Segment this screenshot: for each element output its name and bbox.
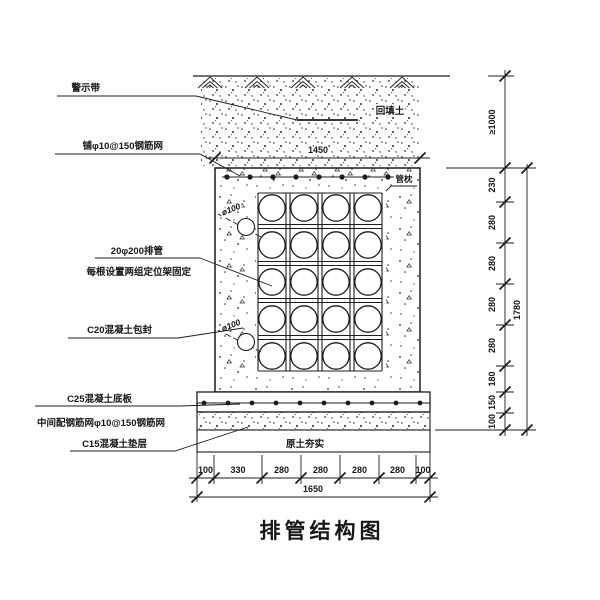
pipe-circle [355, 306, 381, 332]
rebar-dot [270, 174, 275, 179]
base-structure: 原土夯实 [197, 392, 430, 452]
pipe-duct-section-drawing: 回填土 警示带 铺φ10@150钢筋网 1450 管枕 ø100 [0, 0, 600, 600]
dim-right-seg-7: 100 [487, 414, 497, 429]
rebar-dot [298, 401, 303, 406]
base-slab-mesh-label: 中间配钢筋网φ10@150钢筋网 [37, 417, 165, 429]
pipe-circle [323, 306, 349, 332]
warning-tape-label: 警示带 [71, 82, 100, 94]
drawing-sheet: 回填土 警示带 铺φ10@150钢筋网 1450 管枕 ø100 [0, 0, 600, 600]
rebar-dot [293, 174, 298, 179]
pipe-pillow-label: 管枕 [395, 174, 413, 184]
dim-right: ≥1000 230 280 280 280 280 180 150 100 17… [435, 70, 536, 436]
pipe-circle [291, 306, 317, 332]
pipe-circle [355, 232, 381, 258]
drain-lower-circle [238, 334, 255, 351]
base-slab-label: C25混凝土底板 [67, 393, 132, 405]
pipe-circle [259, 232, 285, 258]
cushion-layer [197, 412, 430, 430]
rebar-dot [362, 174, 367, 179]
rebar-dot [274, 401, 279, 406]
pipe-circle [323, 269, 349, 295]
dim-bottom: 100 330 280 280 280 280 100 1650 [189, 452, 438, 503]
rebar-dot [385, 174, 390, 179]
dim-right-seg-6: 150 [487, 395, 497, 410]
duct-structure: 管枕 ø100 ø100 [215, 168, 420, 392]
dim-bottom-seg-0: 100 [198, 465, 213, 475]
dim-right-seg-2: 280 [487, 256, 497, 271]
dim-bottom-seg-5: 280 [390, 465, 405, 475]
top-mesh-label: 铺φ10@150钢筋网 [83, 140, 163, 152]
pipe-circle [355, 343, 381, 369]
pipe-circle [259, 306, 285, 332]
dim-bottom-seg-4: 280 [352, 465, 367, 475]
rebar-dot [316, 174, 321, 179]
rebar-dot [346, 401, 351, 406]
pipe-circle [259, 195, 285, 221]
dim-bottom-extensions [197, 452, 430, 502]
dim-right-extensions [435, 76, 536, 430]
pipe-circle [323, 232, 349, 258]
dim-bottom-seg-6: 100 [415, 465, 430, 475]
pipe-circle [291, 343, 317, 369]
dim-right-total-value: 1780 [512, 300, 522, 320]
rammed-soil-label: 原土夯实 [286, 438, 325, 450]
dim-right-seg-0: 230 [487, 177, 497, 192]
pipe-circle [291, 232, 317, 258]
dim-bottom-total-value: 1650 [303, 484, 323, 494]
pipe-circle [291, 195, 317, 221]
backfill-label: 回填土 [376, 105, 405, 117]
rebar-dot [202, 401, 207, 406]
drawing-title: 排管结构图 [260, 519, 385, 543]
cushion-label: C15混凝土垫层 [82, 438, 147, 450]
dim-bottom-seg-2: 280 [274, 465, 289, 475]
rebar-dot [394, 401, 399, 406]
pipe-circle [355, 269, 381, 295]
dim-right-seg-3: 280 [487, 297, 497, 312]
rebar-dot [418, 401, 423, 406]
rebar-dot [247, 174, 252, 179]
rebar-dot [250, 401, 255, 406]
dim-right-seg-1: 280 [487, 215, 497, 230]
rebar-dot [339, 174, 344, 179]
pipe-circle [259, 343, 285, 369]
dim-right-seg-4: 280 [487, 338, 497, 353]
pipes-label: 20φ200排管 [111, 245, 164, 257]
pipe-circle [355, 195, 381, 221]
pipe-circle [291, 269, 317, 295]
rebar-dot [370, 401, 375, 406]
dim-right-seg-5: 180 [487, 371, 497, 386]
pipes-note-label: 每根设置两组定位架固定 [86, 266, 191, 278]
dim-bottom-seg-1: 330 [230, 465, 245, 475]
dim-1450-value: 1450 [308, 145, 328, 155]
dim-bottom-seg-3: 280 [313, 465, 328, 475]
rebar-dot [224, 174, 229, 179]
pipe-circle [323, 343, 349, 369]
encasement-label: C20混凝土包封 [87, 324, 152, 336]
pipe-circle [323, 195, 349, 221]
dim-cover-depth: ≥1000 [487, 110, 497, 135]
drain-upper-circle [238, 219, 255, 236]
base-slab-mesh-callout: 中间配钢筋网φ10@150钢筋网 [37, 417, 165, 429]
rebar-dot [322, 401, 327, 406]
